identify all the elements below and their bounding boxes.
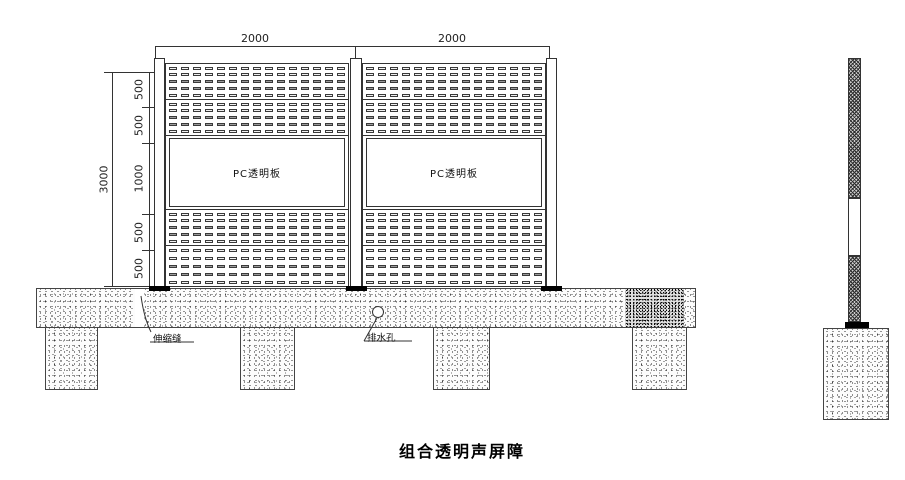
drawing-canvas: 2000 2000 3000 500 500 1000 500 500 PC透明… [0, 0, 905, 480]
side-foundation-block [823, 328, 889, 420]
expansion-joint-label: 伸缩缝 [153, 331, 182, 345]
annotation-leader-lines [0, 0, 905, 480]
side-post-upper-section [848, 58, 861, 198]
drain-hole-label: 排水孔 [367, 330, 396, 344]
drawing-title: 组合透明声屏障 [302, 438, 622, 462]
side-post-pc-window [848, 198, 861, 256]
side-post-lower-section [848, 256, 861, 322]
